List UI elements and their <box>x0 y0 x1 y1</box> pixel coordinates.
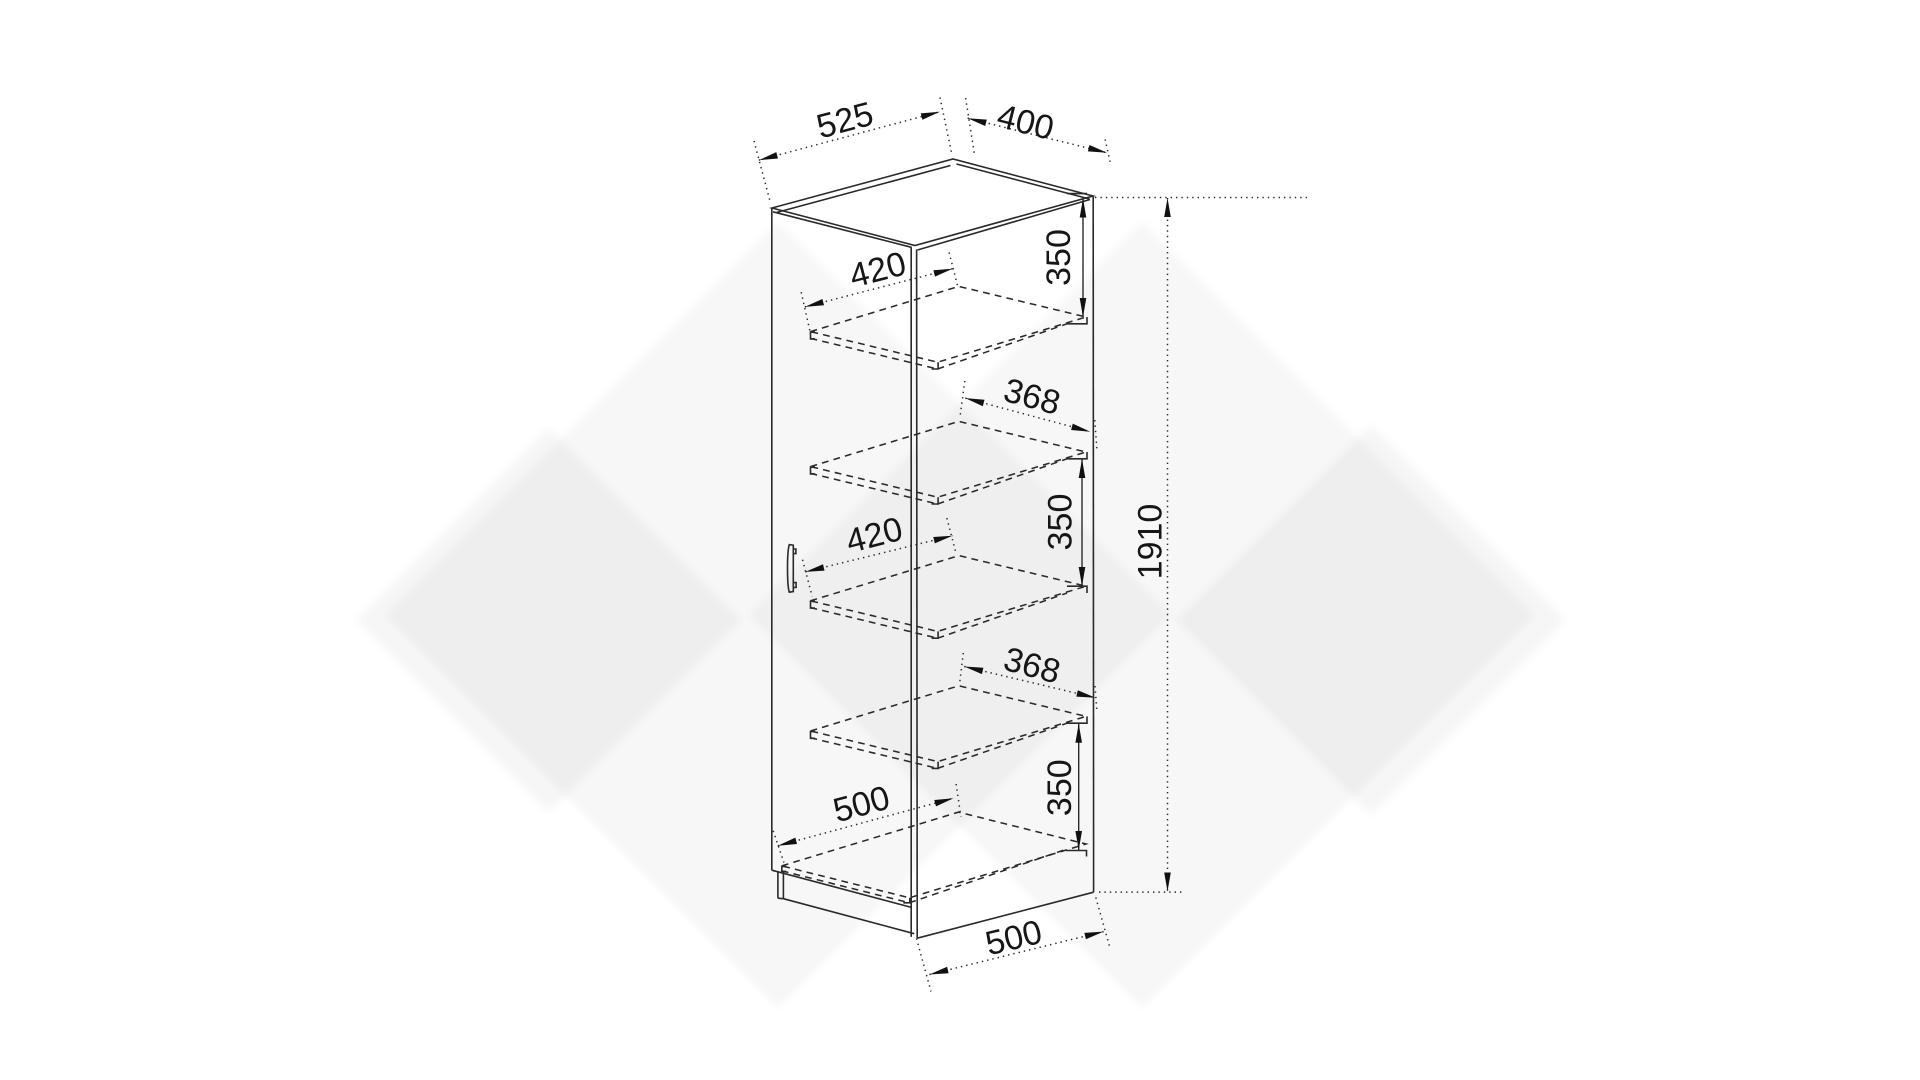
svg-text:350: 350 <box>1040 229 1078 286</box>
svg-text:350: 350 <box>1041 759 1079 816</box>
svg-text:350: 350 <box>1042 494 1080 551</box>
svg-text:1910: 1910 <box>1132 504 1170 580</box>
